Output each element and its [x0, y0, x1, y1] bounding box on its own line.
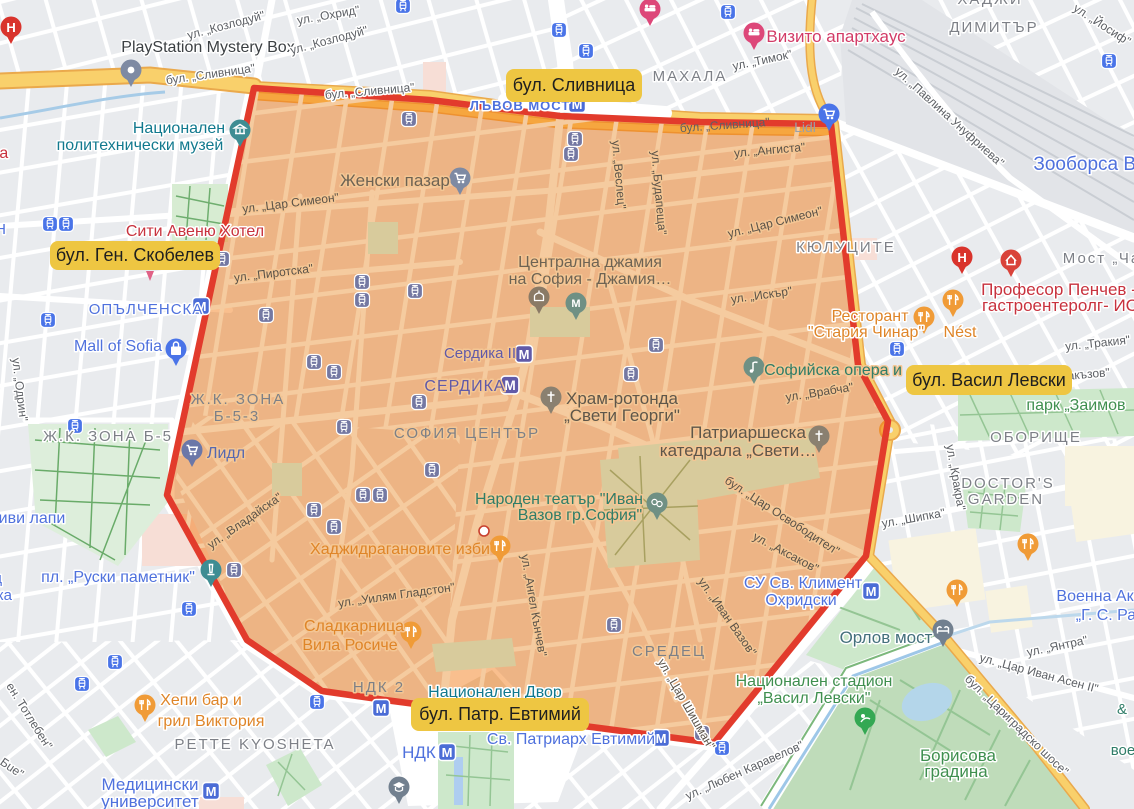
svg-text:Lidl: Lidl	[794, 119, 816, 135]
svg-text:гастроентеролг- ИС: гастроентеролг- ИС	[982, 296, 1134, 315]
svg-text:Национален: Национален	[133, 120, 225, 137]
svg-text:бул. Ген. Скобелев: бул. Ген. Скобелев	[56, 245, 214, 265]
svg-text:НДК: НДК	[402, 743, 436, 762]
svg-text:Вила Росиче: Вила Росиче	[302, 637, 397, 654]
svg-text:градина: градина	[924, 762, 988, 781]
svg-text:политехнически музей: политехнически музей	[57, 137, 224, 154]
svg-text:НДК 2: НДК 2	[353, 679, 405, 696]
svg-text:Зооборса Ве: Зооборса Ве	[1033, 154, 1134, 175]
svg-text:Визито апартхаус: Визито апартхаус	[766, 27, 906, 46]
svg-text:Сердика II: Сердика II	[444, 345, 516, 362]
svg-text:Орлов мост: Орлов мост	[840, 628, 933, 647]
svg-text:Женски пазар: Женски пазар	[340, 171, 450, 190]
svg-text:фонд: фонд	[0, 570, 2, 587]
svg-text:Ресторант: Ресторант	[832, 308, 910, 325]
svg-text:МАХАЛА: МАХАЛА	[653, 68, 728, 85]
svg-text:СРЕДЕЦ: СРЕДЕЦ	[632, 643, 706, 660]
svg-text:КЮЛУЦИТЕ: КЮЛУЦИТЕ	[796, 239, 896, 256]
svg-text:Патриаршеска: Патриаршеска	[690, 423, 806, 442]
svg-text:Хаджидрагановите изби: Хаджидрагановите изби	[310, 541, 490, 558]
svg-text:GARDEN: GARDEN	[968, 491, 1044, 508]
svg-text:PETTE KYOSHETA: PETTE KYOSHETA	[174, 736, 335, 753]
svg-text:Вазов гр.София": Вазов гр.София"	[518, 507, 642, 524]
svg-text:Сладкарница: Сладкарница	[304, 618, 404, 635]
svg-text:Nést: Nést	[944, 324, 977, 341]
svg-text:M: M	[571, 298, 580, 310]
svg-text:грил Виктория: грил Виктория	[158, 713, 265, 730]
svg-text:„Свети Георги": „Свети Георги"	[564, 406, 680, 425]
svg-text:&: &	[1117, 701, 1127, 718]
svg-text:ДИМИТЪР: ДИМИТЪР	[949, 19, 1038, 36]
svg-text:Н: Н	[0, 221, 6, 238]
svg-text:ОПЪЛЧЕНСКА: ОПЪЛЧЕНСКА	[89, 301, 204, 318]
svg-text:бул. Сливница: бул. Сливница	[513, 75, 636, 95]
svg-text:Ж.К. ЗОНА: Ж.К. ЗОНА	[191, 391, 286, 408]
svg-text:Лидл: Лидл	[207, 445, 245, 462]
svg-text:бул. Патр. Евтимий: бул. Патр. Евтимий	[419, 704, 581, 724]
svg-text:иви лапи: иви лапи	[0, 510, 65, 527]
svg-text:катедрала „Свети…: катедрала „Свети…	[660, 441, 816, 460]
svg-text:Сити Авеню Хотел: Сити Авеню Хотел	[126, 223, 264, 240]
svg-text:СОФИЯ ЦЕНТЪР: СОФИЯ ЦЕНТЪР	[394, 425, 540, 442]
svg-text:Св. Патриарх Евтимий: Св. Патриарх Евтимий	[487, 731, 655, 748]
svg-text:Sofia: Sofia	[0, 145, 8, 162]
svg-text:Централна джамия: Централна джамия	[518, 254, 662, 271]
svg-text:Софийска опера и: Софийска опера и	[764, 362, 902, 379]
svg-text:„Васил Левски": „Васил Левски"	[758, 690, 871, 707]
svg-text:парк „Заимов: парк „Заимов	[1026, 397, 1125, 414]
svg-text:на София - Джамия…: на София - Джамия…	[509, 271, 672, 288]
svg-text:PlayStation Mystery Box: PlayStation Mystery Box	[121, 39, 294, 56]
svg-text:СУ Св. Климент: СУ Св. Климент	[744, 575, 863, 592]
svg-text:ХАДЖИ: ХАДЖИ	[957, 0, 1022, 8]
svg-text:Охридски: Охридски	[765, 592, 836, 609]
svg-text:Хепи бар и: Хепи бар и	[160, 692, 242, 709]
svg-text:Военна Ак: Военна Ак	[1056, 588, 1134, 605]
svg-text:ОБОРИЩЕ: ОБОРИЩЕ	[990, 429, 1082, 446]
svg-text:пл. „Руски паметник": пл. „Руски паметник"	[41, 569, 195, 586]
svg-text:бул. Васил Левски: бул. Васил Левски	[912, 370, 1066, 390]
svg-text:Ж.К. ЗОНА Б-5: Ж.К. ЗОНА Б-5	[43, 428, 173, 445]
svg-text:университет: университет	[101, 792, 199, 809]
svg-text:„Г. С. Ра: „Г. С. Ра	[1076, 607, 1134, 624]
svg-text:ка: ка	[0, 587, 13, 604]
svg-text:Mall of Sofia: Mall of Sofia	[74, 338, 162, 355]
svg-text:Б-5-3: Б-5-3	[214, 408, 261, 425]
svg-text:СЕРДИКА: СЕРДИКА	[424, 378, 505, 395]
svg-text:Национален стадион: Национален стадион	[736, 673, 893, 690]
svg-text:"Стария Чинар": "Стария Чинар"	[808, 324, 924, 341]
svg-text:H: H	[957, 250, 966, 265]
svg-text:вое: вое	[1111, 742, 1134, 759]
svg-text:DOCTOR'S: DOCTOR'S	[961, 475, 1055, 492]
svg-text:H: H	[6, 20, 15, 35]
svg-text:Народен театър "Иван: Народен театър "Иван	[475, 491, 643, 508]
svg-text:Мост „Ча: Мост „Ча	[1063, 250, 1134, 267]
